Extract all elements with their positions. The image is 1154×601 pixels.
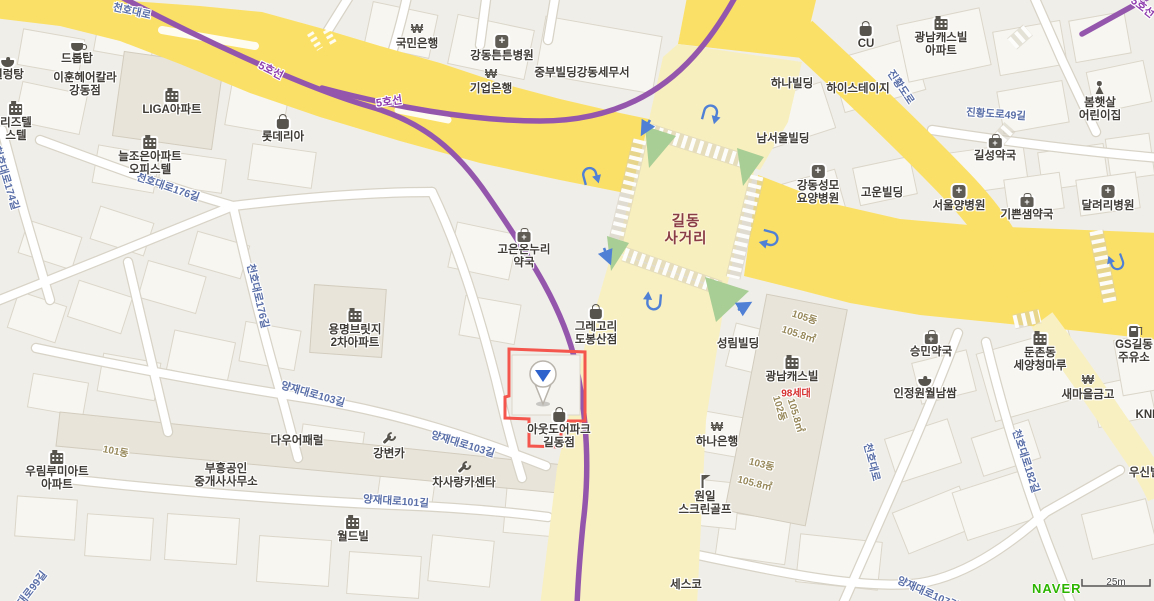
poi[interactable]: 승민약국 [910,330,952,359]
poi[interactable]: 둔촌동세양청마루 [1014,331,1067,372]
poi-label: 고운빌딩 [861,187,903,200]
poi[interactable]: 늘조은아파트오피스텔 [118,135,181,176]
poi-label: 국민은행 [396,38,438,51]
building-icon [143,138,156,149]
poi-label: 롯데리아 [262,131,304,144]
hospital-icon [495,35,508,48]
poi-label: 서울양병원 [933,200,986,213]
poi-label: 우림루미아트 [25,466,88,479]
intersection-label: 길동 사거리 [664,214,707,248]
hospital-icon [1102,185,1115,198]
poi-label: 월드빌 [337,531,369,544]
pharmacy-icon [1021,197,1034,207]
poi-label: 어린이집 [1079,110,1121,123]
fuel-icon [1130,326,1139,337]
poi[interactable]: 길성약국 [974,134,1016,163]
poi[interactable]: 강동성모요양병원 [797,165,839,205]
building-icon [1034,334,1047,345]
poi-label: GS길동 [1115,339,1153,352]
intersection-line: 길동 [664,214,707,231]
poi[interactable]: 세스코 [670,579,702,592]
pharmacy-icon [988,138,1001,148]
poi-label: 부흥공인 [205,463,247,476]
poi-label: 오피스텔 [129,164,171,177]
pharmacy-icon [924,334,937,344]
shop-icon [553,412,565,422]
poi[interactable]: 우림루미아트아파트 [25,450,88,491]
poi[interactable]: 차사랑카센타 [432,461,495,490]
poi[interactable]: 용명브릿지2차아파트 [329,308,382,349]
poi[interactable]: 이훈헤어칼라강동점 [53,72,116,97]
poi[interactable]: GS길동주유소 [1115,323,1153,364]
poi[interactable]: 설렁탕 [0,54,24,82]
poi[interactable]: 하나빌딩 [771,78,813,91]
poi[interactable]: 기업은행 [470,67,512,96]
poi[interactable]: 남서울빌딩 [757,133,810,146]
poi-label: 강동튼튼병원 [470,50,533,63]
poi-label: 요양병원 [797,193,839,206]
wrench-icon [382,432,396,446]
poi[interactable]: 강동튼튼병원 [470,35,533,63]
naver-logo[interactable]: NAVER [1032,581,1082,596]
poi-label: 둔촌동 [1024,347,1056,360]
poi-label: 중부빌딩강동세무서 [534,67,629,80]
poi-label: 세스코 [670,579,702,592]
building-icon [786,358,799,369]
building-icon [166,91,179,102]
poi-label: 그레고리 [575,321,617,334]
person-icon [1093,81,1107,95]
poi-label: 남서울빌딩 [757,133,810,146]
cafe-icon [71,43,83,51]
poi-label: 다우어패럴 [271,435,324,448]
bank-icon [710,420,724,434]
poi[interactable]: 광남캐스빌 [766,355,819,384]
poi[interactable]: 아웃도어파크길동점 [527,408,590,449]
poi-label: KNB [1136,409,1154,422]
pharmacy-icon [518,232,531,242]
poi-label: 달려리병원 [1082,200,1135,213]
poi[interactable]: 봄햇살어린이집 [1079,81,1121,122]
poi-label: 하이스테이지 [826,83,889,96]
poi-label: 기쁜샘약국 [1001,209,1054,222]
poi[interactable]: 리즈텔스텔 [0,101,32,142]
poi-label: CU [858,38,875,51]
shop-icon [590,309,602,319]
poi-label: 중개사사무소 [194,476,257,489]
poi-label: 세양청마루 [1014,360,1067,373]
poi-label: 이훈헤어칼라 [53,72,116,85]
poi-label: 강변카 [373,448,405,461]
poi-label: 드롭탑 [61,53,93,66]
poi-label: 광남캐스빌 [766,371,819,384]
poi[interactable]: 부흥공인중개사사무소 [194,463,257,488]
poi[interactable]: 기쁜샘약국 [1001,193,1054,222]
poi[interactable]: 국민은행 [396,22,438,51]
poi-label: 인정원월남쌈 [893,388,956,401]
poi[interactable]: 광남캐스빌아파트 [915,16,968,57]
bank-icon [484,67,498,81]
restaurant-icon [2,60,15,67]
scale-bar: 25m [1080,578,1152,588]
poi-label: 스크린골프 [679,504,732,517]
poi[interactable]: 중부빌딩강동세무서 [534,67,629,80]
poi[interactable]: 하이스테이지 [826,83,889,96]
hospital-icon [953,185,966,198]
poi[interactable]: 인정원월남쌈 [893,373,956,401]
poi-label: 하나은행 [696,436,738,449]
shop-icon [277,119,289,129]
poi[interactable]: 롯데리아 [262,115,304,144]
building-icon [50,453,63,464]
poi-label: 승민약국 [910,346,952,359]
poi-label: 길성약국 [974,150,1016,163]
poi-label: 광남캐스빌 [915,32,968,45]
map-canvas[interactable]: 천호대로천호대로176길천호대로176길천호대로174길양재대로103길양재대로… [0,0,1154,601]
poi-label: 하나빌딩 [771,78,813,91]
poi[interactable]: 고운빌딩 [861,187,903,200]
poi-label: 기업은행 [470,83,512,96]
poi[interactable]: 고은온누리약국 [498,228,551,269]
poi[interactable]: 드롭탑 [61,38,93,66]
wrench-icon [457,461,471,475]
poi-label: 스텔 [5,130,26,143]
shop-icon [860,26,872,36]
poi-label: 성림빌딩 [717,338,759,351]
building-icon [10,104,23,115]
poi[interactable]: 성림빌딩 [717,338,759,351]
poi[interactable]: CU [858,22,875,51]
poi-label: 우신빌딩 [1129,467,1154,480]
scale-bracket [1080,578,1152,588]
intersection-line: 사거리 [664,231,707,248]
poi-label: 강동점 [69,85,101,98]
poi-label: 차사랑카센타 [432,477,495,490]
poi-label: 용명브릿지 [329,324,382,337]
poi-label: 새마을금고 [1062,389,1115,402]
poi-label: 봄햇살 [1084,97,1116,110]
poi-label: 원일 [694,491,715,504]
building-icon [349,311,362,322]
poi-label: 리즈텔 [0,117,32,130]
poi[interactable]: 서울양병원 [933,185,986,213]
poi[interactable]: 월드빌 [337,515,369,544]
poi-label: 아파트 [41,479,73,492]
poi-label: 고은온누리 [498,244,551,257]
poi[interactable]: 원일스크린골프 [679,475,732,516]
building-icon [347,518,360,529]
poi-label: 강동성모 [797,180,839,193]
poi[interactable]: 새마을금고 [1062,373,1115,402]
poi-label: 도봉산점 [575,334,617,347]
poi-label: 설렁탕 [0,69,24,82]
poi-label: LIGA아파트 [142,104,201,117]
poi[interactable]: 우신빌딩 [1129,467,1154,480]
poi-label: 약국 [513,257,534,270]
poi-label: 2차아파트 [331,337,380,350]
restaurant-icon [918,379,931,386]
poi-label: 아웃도어파크 [527,424,590,437]
poi-label: 길동점 [543,437,575,450]
bank-icon [410,22,424,36]
hospital-icon [811,165,824,178]
poi[interactable]: KNB [1136,409,1154,422]
poi[interactable]: 다우어패럴 [271,435,324,448]
poi-label: 늘조은아파트 [118,151,181,164]
bank-icon [1081,373,1095,387]
poi[interactable]: 달려리병원 [1082,185,1135,213]
golf-icon [698,475,712,489]
poi[interactable]: 하나은행 [696,420,738,449]
poi-label: 아파트 [925,45,957,58]
poi[interactable]: LIGA아파트 [142,88,201,117]
poi-label: 주유소 [1118,352,1150,365]
poi[interactable]: 강변카 [373,432,405,461]
poi[interactable]: 그레고리도봉산점 [575,305,617,346]
building-icon [935,19,948,30]
